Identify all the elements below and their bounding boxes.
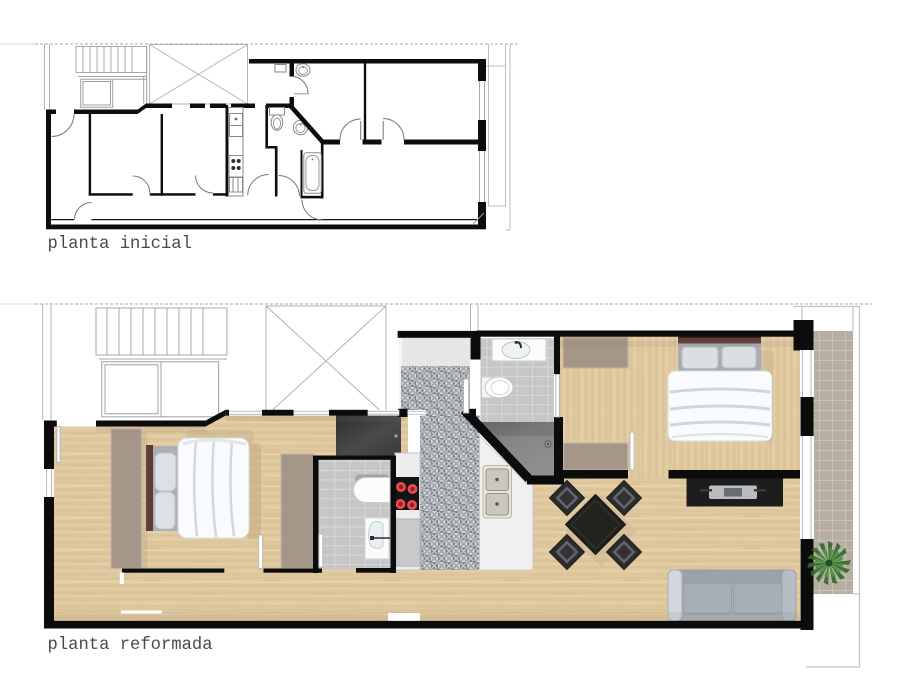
- svg-text:planta reformada: planta reformada: [48, 636, 213, 655]
- svg-text:planta inicial: planta inicial: [48, 235, 192, 254]
